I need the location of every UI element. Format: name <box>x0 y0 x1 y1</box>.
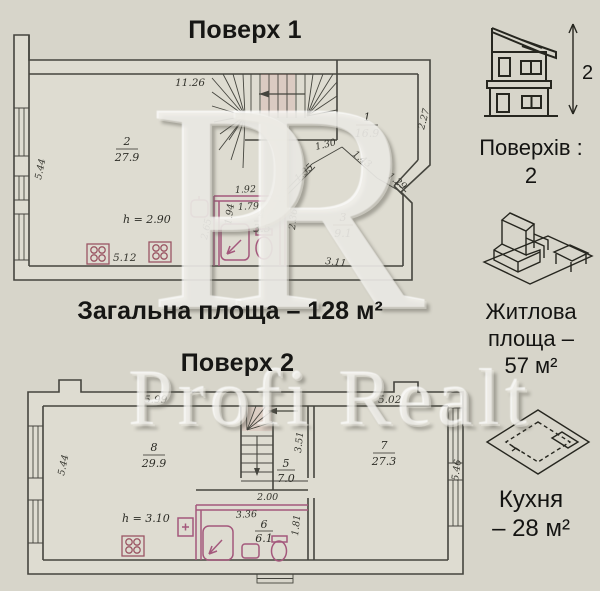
dim-label: 1.79 <box>238 201 260 213</box>
dim-label: 3.51 <box>293 431 306 453</box>
living-area-value: 57 м² <box>462 352 600 379</box>
house-icon: 2 <box>478 14 596 132</box>
dim-label: 2.36 <box>287 208 300 231</box>
dim-label: 3.36 <box>236 509 258 521</box>
armchair-icon <box>478 200 596 292</box>
dim-label: 1.92 <box>235 184 257 196</box>
svg-text:16.9: 16.9 <box>355 127 380 140</box>
svg-text:3: 3 <box>340 211 347 224</box>
floor2-title: Поверх 2 <box>90 349 385 378</box>
floor2-height-label: h = 3.10 <box>122 512 170 525</box>
svg-text:1: 1 <box>364 111 371 124</box>
dim-label: 1.81 <box>290 514 303 536</box>
svg-text:2: 2 <box>123 135 131 148</box>
house-floors-count: 2 <box>582 62 593 84</box>
svg-text:7.0: 7.0 <box>277 472 295 485</box>
dim-label: 5.02 <box>378 394 402 406</box>
dim-label: 5.12 <box>113 252 137 264</box>
svg-text:6.1: 6.1 <box>255 532 273 545</box>
floors-label: Поверхів : <box>462 134 600 161</box>
floors-value: 2 <box>462 162 600 189</box>
floor1-title: Поверх 1 <box>95 16 395 45</box>
floor1-height-label: h = 2.90 <box>123 213 171 226</box>
dim-label: 11.26 <box>175 77 205 89</box>
svg-text:4: 4 <box>258 208 266 221</box>
svg-text:29.9: 29.9 <box>141 457 167 470</box>
living-area-label-line1: Житлова <box>462 298 600 325</box>
floor2-plan: 5.99 5.02 5.44 5.46 3.51 2.00 3.36 1.81 … <box>14 378 474 588</box>
height-arrow <box>569 24 577 114</box>
svg-text:9.1: 9.1 <box>334 227 352 240</box>
dim-label: 3.11 <box>325 256 347 269</box>
radiator <box>257 574 293 583</box>
svg-text:27.3: 27.3 <box>371 455 397 468</box>
svg-text:5: 5 <box>283 457 290 470</box>
dim-label: 5.99 <box>144 394 168 406</box>
svg-text:8: 8 <box>151 441 158 454</box>
svg-text:6: 6 <box>261 518 268 531</box>
svg-text:7: 7 <box>381 439 388 452</box>
floor1-plan: 11.26 5.44 2.27 1.35 1.30 1.43 1.29 1.92… <box>5 28 455 290</box>
kitchen-value: – 28 м² <box>462 515 600 542</box>
living-area-label-line2: площа – <box>462 325 600 352</box>
total-area-text: Загальна площа – 128 м² <box>25 297 435 326</box>
svg-text:27.9: 27.9 <box>114 151 140 164</box>
svg-text:3.5: 3.5 <box>253 222 271 235</box>
kitchen-plan-icon <box>482 406 594 478</box>
dim-label: 2.00 <box>256 492 278 503</box>
kitchen-label: Кухня <box>462 486 600 513</box>
floorplan-photo: Поверх 1 Загальна площа – 128 м² Поверх … <box>0 0 600 591</box>
